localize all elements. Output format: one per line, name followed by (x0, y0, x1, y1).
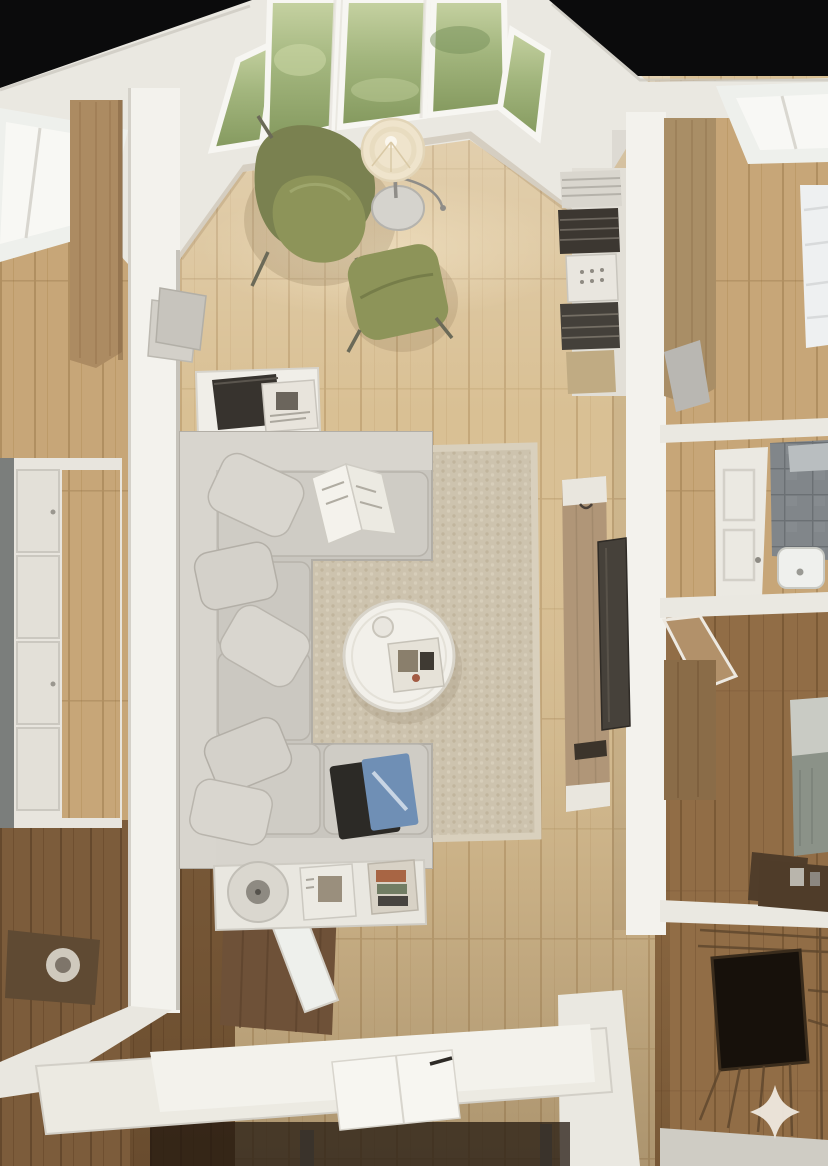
hallway-closet (0, 458, 122, 828)
book-box-white (566, 254, 618, 302)
sideboard-item-1 (790, 868, 804, 886)
speaker-dot (255, 889, 261, 895)
book-stack-4 (566, 350, 616, 394)
left-wardrobe-shadow (118, 100, 123, 360)
closet-handle-1 (51, 510, 56, 515)
foliage-shadow-1 (430, 26, 490, 54)
media-shelf (214, 860, 426, 930)
television (598, 538, 630, 730)
render-canvas (0, 0, 828, 1166)
foliage-highlight-2 (351, 78, 419, 102)
gray-shelving-edge (0, 458, 14, 828)
desk-leg-1 (300, 1130, 314, 1166)
right-living-wall (626, 112, 666, 935)
closet-hall-floor (62, 470, 120, 818)
stairwell-void (712, 950, 808, 1070)
magazine-cover-photo (318, 876, 342, 902)
left-living-wall (128, 88, 180, 1013)
window-pane-c3 (430, 0, 506, 115)
door-handle (755, 557, 761, 563)
leaning-frame-2 (156, 288, 206, 350)
window-pane-c2 (340, 0, 428, 127)
cup (373, 617, 393, 637)
closet-door-4 (17, 728, 59, 810)
tv-panel-cap-top (562, 476, 607, 506)
bookshelf (558, 168, 626, 396)
bedroom2-cabinet (664, 660, 716, 800)
bed2-headboard (792, 752, 828, 856)
table-book-dark (420, 652, 434, 670)
book-stack-2 (558, 208, 620, 254)
closet-door-2 (17, 556, 59, 638)
lamp-base (372, 186, 424, 230)
left-wall-edge (128, 88, 131, 1013)
bathroom-fixture (778, 548, 824, 588)
entry-roll-core (55, 957, 71, 973)
foliage-highlight-1 (274, 44, 326, 76)
console-table (196, 368, 320, 436)
bed2-frame-top (790, 697, 828, 760)
desk-leg-2 (540, 1124, 552, 1166)
apartment-top-down-render (0, 0, 828, 1166)
sofa-back-top (180, 432, 432, 470)
book-stack-1 (560, 170, 622, 208)
bathroom-mirror-glint (788, 443, 828, 472)
table-book-accent (412, 674, 420, 682)
cord-plug (440, 205, 446, 211)
fixture-drain (797, 569, 804, 576)
table-book-photo (398, 650, 418, 672)
sideboard-item-2 (810, 872, 820, 886)
magazine-photo (276, 392, 298, 410)
closet-handle-2 (51, 682, 56, 687)
